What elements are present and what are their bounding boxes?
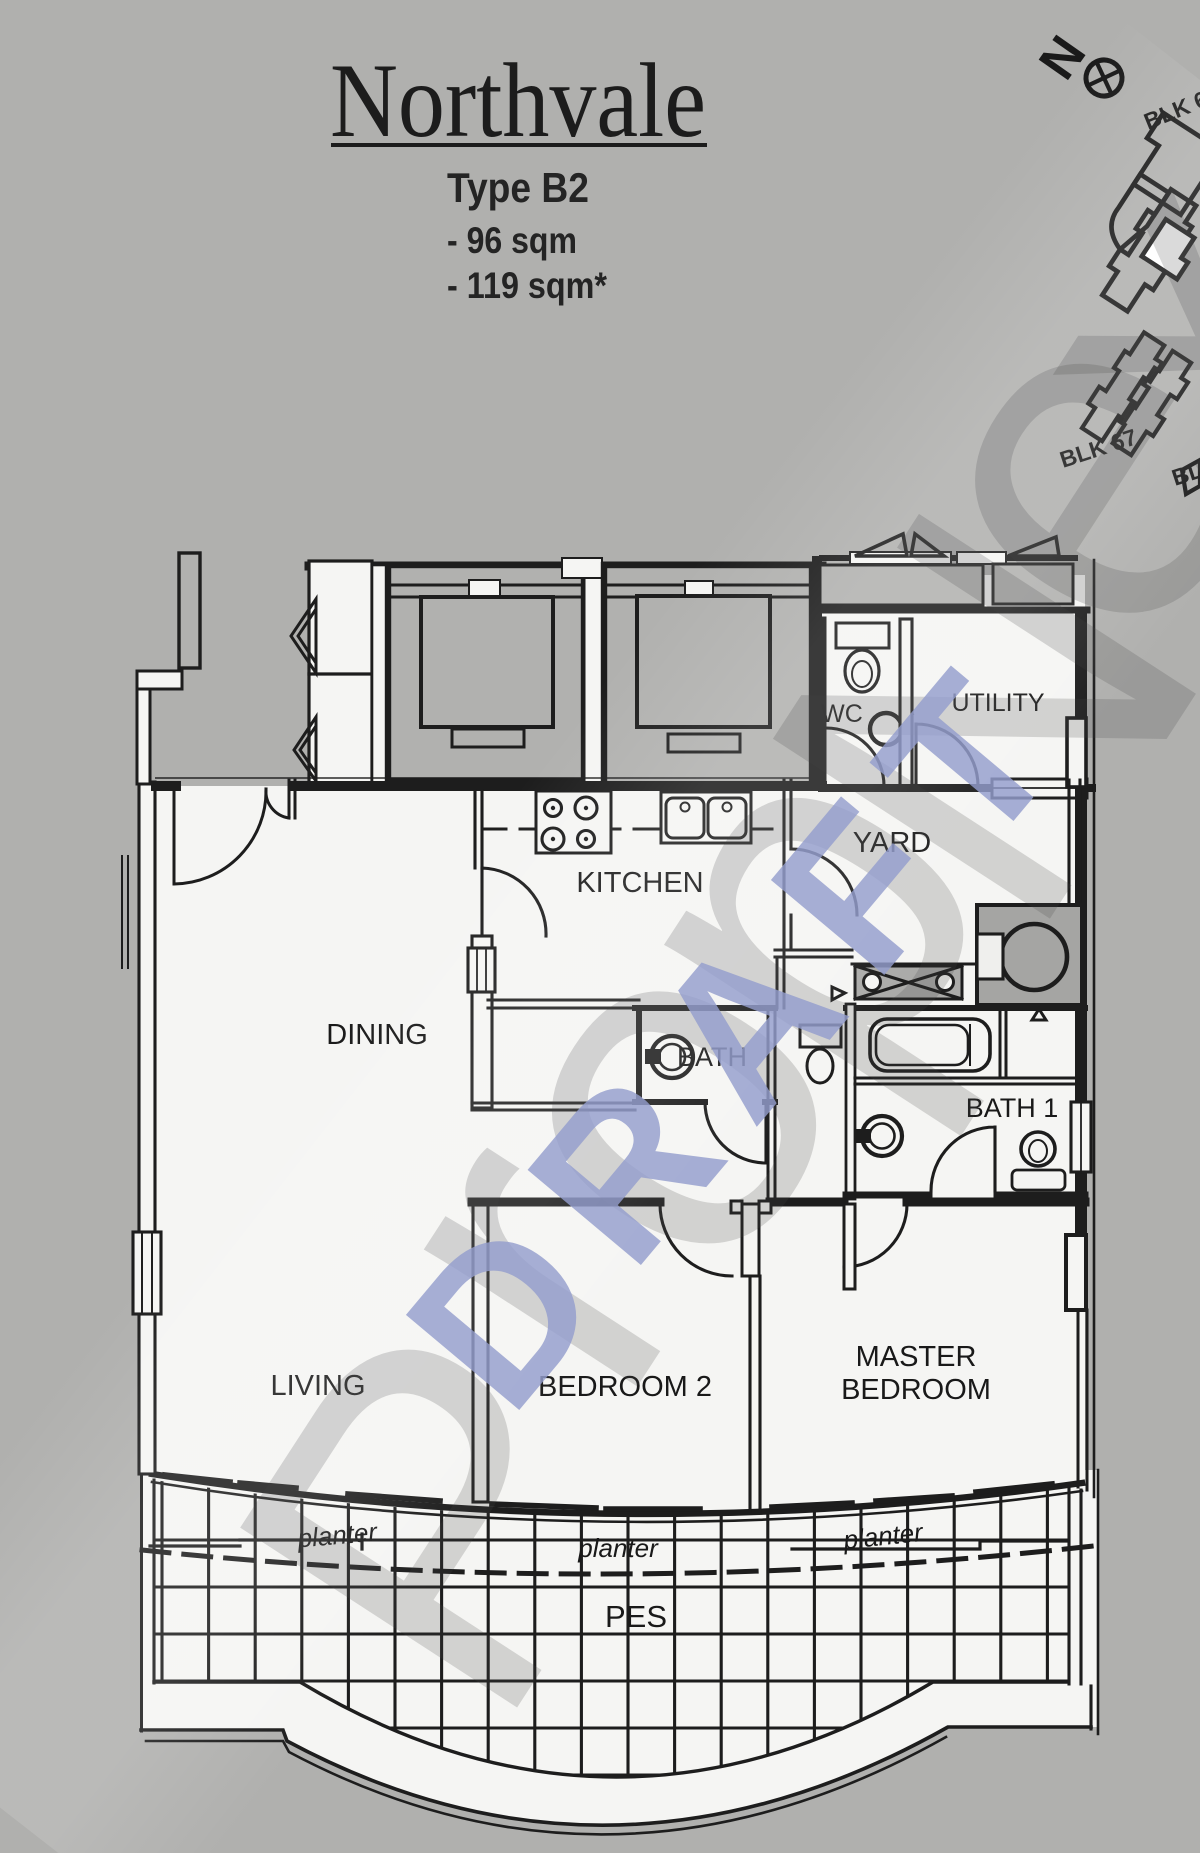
- svg-text:Type B2: Type B2: [447, 164, 589, 211]
- svg-text:- 96 sqm: - 96 sqm: [447, 220, 577, 261]
- svg-text:- 119 sqm*: - 119 sqm*: [447, 265, 608, 306]
- svg-text:BEDROOM: BEDROOM: [841, 1374, 991, 1406]
- svg-text:Northvale: Northvale: [330, 42, 706, 159]
- svg-text:MASTER: MASTER: [856, 1341, 977, 1373]
